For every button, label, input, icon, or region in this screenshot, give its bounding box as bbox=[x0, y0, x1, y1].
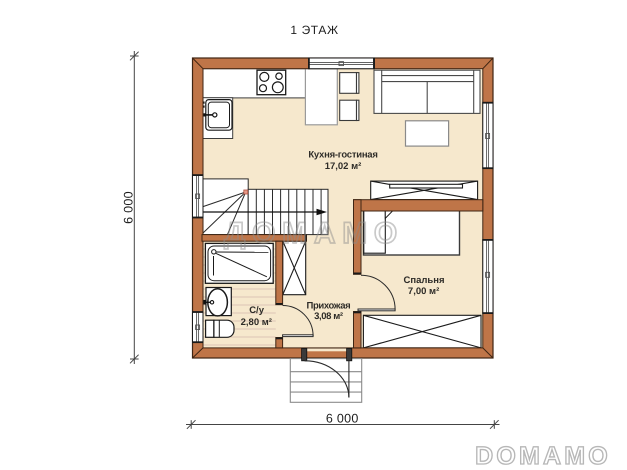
svg-text:Кухня-гостиная: Кухня-гостиная bbox=[308, 150, 377, 161]
svg-text:6 000: 6 000 bbox=[122, 191, 136, 224]
svg-text:17,02 м²: 17,02 м² bbox=[325, 161, 362, 172]
svg-text:7,00 м²: 7,00 м² bbox=[408, 286, 439, 297]
svg-text:1 ЭТАЖ: 1 ЭТАЖ bbox=[290, 23, 338, 37]
svg-text:С/у: С/у bbox=[249, 305, 265, 316]
svg-text:Спальня: Спальня bbox=[403, 275, 444, 286]
svg-text:6 000: 6 000 bbox=[326, 411, 359, 425]
svg-text:ДОМАМО: ДОМАМО bbox=[224, 217, 404, 250]
svg-text:2,80 м²: 2,80 м² bbox=[241, 317, 272, 328]
svg-text:DOMAMO: DOMAMO bbox=[475, 442, 611, 470]
svg-text:3,08 м²: 3,08 м² bbox=[314, 311, 343, 322]
